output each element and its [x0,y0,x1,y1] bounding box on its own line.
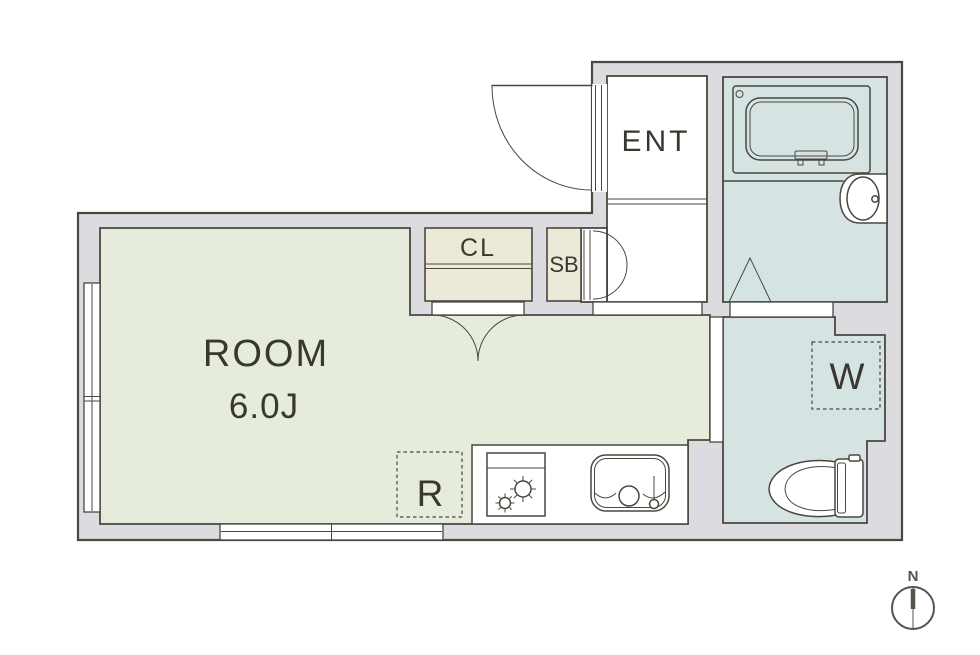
sink-faucet [619,486,639,506]
entrance-door-swing-arc [492,86,592,191]
kitchen-counter [472,445,688,524]
bottom-window [220,524,443,540]
compass-north-label: N [908,568,919,585]
sink-lever-knob [650,500,659,509]
compass: N [892,568,934,629]
floor-plan-page: ENT CL SB ROOM 6.0J R W N [0,0,980,655]
toilet-tank [835,459,863,517]
toilet-button [849,455,860,461]
entrance-label: ENT [622,125,691,158]
left-window [84,283,100,512]
closet-label: CL [460,234,496,262]
entrance-hall-floor [607,76,707,302]
room-size-label: 6.0J [229,387,299,426]
refrigerator-space-label: R [417,473,444,514]
room-name-label: ROOM [203,333,329,375]
floor-plan-svg: ENT CL SB ROOM 6.0J R W N [0,0,980,655]
room-entry-opening [593,302,702,315]
washroom-door-opening [710,317,723,442]
closet-door-opening [432,302,524,315]
washbasin-faucet [872,196,878,202]
shoe-box-door-zone [581,228,607,302]
entrance-door-opening [592,84,607,192]
shoe-box-label: SB [549,252,578,277]
bathroom-threshold [730,302,833,317]
washer-space-label: W [830,356,865,397]
